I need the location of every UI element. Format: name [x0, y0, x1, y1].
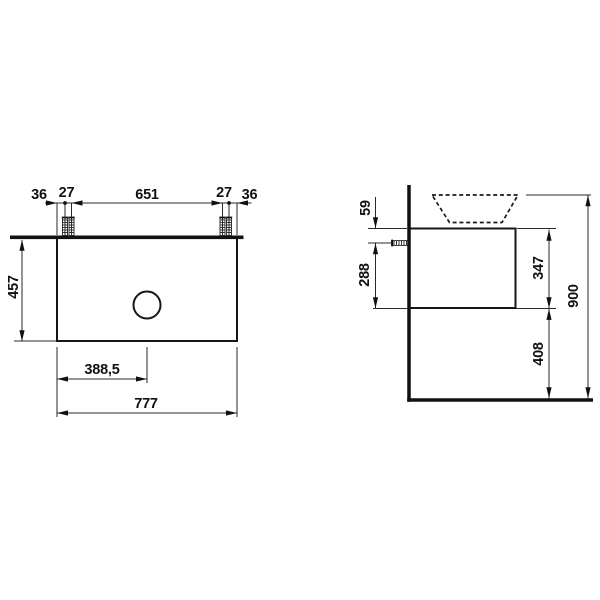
dim-arrowhead — [212, 200, 223, 205]
dim-arrowhead — [585, 387, 590, 398]
drain-hole-circle — [134, 292, 161, 319]
cabinet-side-outline — [409, 229, 516, 309]
front-cabinet — [10, 236, 244, 342]
dim-arrowhead — [373, 297, 378, 308]
dim-arrowhead — [72, 200, 83, 205]
dim-arrowhead — [373, 243, 378, 254]
dim-arrowhead — [57, 376, 68, 381]
dim-label-777: 777 — [134, 396, 158, 412]
dim-label-27-right: 27 — [216, 185, 232, 201]
dim-label-900: 900 — [566, 284, 582, 308]
dim-label-408: 408 — [531, 342, 547, 366]
dim-arrowhead — [373, 217, 378, 228]
dim-arrowhead — [546, 297, 551, 308]
dim-arrowhead — [585, 195, 590, 206]
dim-label-457: 457 — [6, 275, 22, 299]
dim-label-36-left: 36 — [31, 187, 47, 203]
front-view: 36 27 651 27 36 — [6, 185, 257, 417]
dim-arrowhead — [46, 200, 57, 205]
dim-label-388-5: 388,5 — [84, 362, 119, 378]
dim-label-59: 59 — [358, 200, 374, 216]
front-bottom-dimensions: 388,5 777 — [57, 347, 237, 417]
cabinet-outline — [57, 237, 237, 341]
countertop — [10, 236, 244, 240]
dim-arrowhead — [226, 410, 237, 415]
dim-arrowhead — [57, 410, 68, 415]
dim-label-347: 347 — [531, 256, 547, 280]
dim-arrowhead — [546, 230, 551, 241]
dim-dot-marker — [63, 201, 67, 205]
side-dim-347: 347 — [531, 230, 552, 309]
dim-arrowhead — [546, 309, 551, 320]
front-bolts — [62, 218, 232, 236]
dim-label-651: 651 — [135, 187, 159, 203]
mounting-bolt-side — [392, 240, 410, 247]
dim-arrowhead — [136, 376, 147, 381]
dim-arrowhead — [19, 330, 24, 341]
washbasin-outline-dashed — [432, 195, 518, 223]
side-dim-59: 59 — [358, 197, 378, 228]
dim-label-27-left: 27 — [59, 185, 75, 201]
side-dim-408: 408 — [531, 309, 552, 398]
front-height-dimension: 457 — [6, 240, 56, 341]
technical-drawing-canvas: 36 27 651 27 36 — [0, 0, 600, 600]
dim-arrowhead — [19, 240, 24, 251]
dim-arrowhead — [546, 387, 551, 398]
dim-label-36-right: 36 — [242, 187, 258, 203]
side-dim-288: 288 — [357, 243, 378, 308]
side-dim-900: 900 — [566, 195, 591, 398]
vanity-dimension-drawing: 36 27 651 27 36 — [0, 0, 600, 600]
dim-label-288: 288 — [357, 263, 373, 287]
dim-dot-marker — [227, 201, 231, 205]
side-view: 59 288 347 408 900 — [357, 185, 593, 402]
